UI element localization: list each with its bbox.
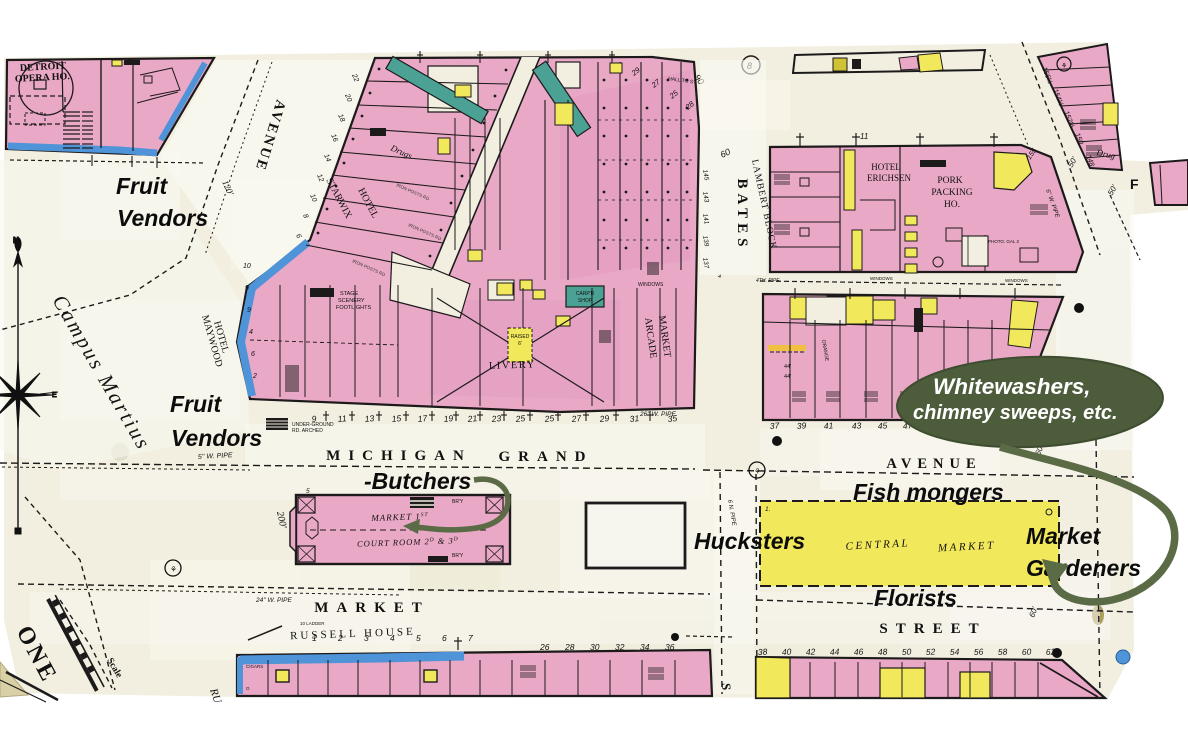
svg-text:25: 25	[543, 413, 555, 424]
svg-text:Whitewashers,: Whitewashers,	[933, 374, 1091, 399]
svg-text:2: 2	[337, 633, 343, 643]
svg-text:HO.: HO.	[944, 200, 960, 210]
svg-text:6: 6	[442, 633, 447, 643]
svg-text:-Butchers: -Butchers	[364, 468, 471, 494]
svg-text:BR'Y: BR'Y	[452, 553, 464, 559]
svg-text:1: 1	[312, 633, 317, 643]
svg-text:5: 5	[416, 633, 421, 643]
svg-text:44': 44'	[784, 364, 791, 370]
svg-text:F: F	[1130, 176, 1139, 192]
svg-text:6: 6	[251, 351, 255, 358]
svg-text:31: 31	[629, 413, 640, 424]
svg-text:MICHIGAN: MICHIGAN	[326, 448, 472, 464]
svg-text:36: 36	[665, 642, 675, 652]
svg-text:25: 25	[514, 413, 526, 424]
svg-text:BATES: BATES	[734, 178, 750, 251]
svg-text:58: 58	[998, 647, 1008, 657]
svg-text:9: 9	[247, 307, 251, 314]
svg-text:Fruit: Fruit	[116, 173, 168, 199]
svg-text:4TH. PIPE: 4TH. PIPE	[756, 278, 780, 284]
svg-text:BR'Y: BR'Y	[452, 499, 464, 505]
svg-text:Market: Market	[1026, 523, 1101, 549]
svg-text:chimney sweeps, etc.: chimney sweeps, etc.	[913, 402, 1118, 424]
svg-text:27: 27	[570, 413, 582, 424]
svg-text:WINDOWS: WINDOWS	[638, 282, 664, 288]
svg-text:PHOTO. GAL 2: PHOTO. GAL 2	[988, 239, 1020, 244]
svg-text:HOTEL: HOTEL	[871, 162, 901, 172]
svg-text:AVENUE: AVENUE	[886, 456, 981, 472]
svg-text:MARKET: MARKET	[314, 600, 430, 616]
svg-text:STREET: STREET	[879, 621, 986, 637]
svg-text:30: 30	[590, 642, 600, 652]
svg-text:WINDOWS: WINDOWS	[1005, 278, 1028, 283]
svg-text:SHOP: SHOP	[578, 298, 593, 304]
svg-text:6': 6'	[518, 341, 522, 347]
svg-text:O: O	[246, 686, 250, 691]
svg-text:Hucksters: Hucksters	[694, 528, 805, 554]
svg-text:1.: 1.	[765, 506, 771, 513]
svg-text:ERICHSEN: ERICHSEN	[867, 173, 912, 183]
svg-text:4: 4	[390, 633, 395, 643]
svg-text:Fish mongers: Fish mongers	[853, 479, 1004, 505]
svg-text:9: 9	[245, 285, 249, 292]
svg-text:39: 39	[796, 420, 806, 431]
svg-text:RD. ARCHED: RD. ARCHED	[292, 428, 323, 434]
svg-text:32: 32	[615, 642, 625, 652]
svg-text:40: 40	[782, 647, 792, 657]
svg-text:STAGE: STAGE	[340, 291, 359, 297]
svg-text:⚘: ⚘	[170, 565, 177, 574]
svg-text:43: 43	[851, 420, 861, 431]
svg-text:N: N	[13, 236, 19, 245]
svg-text:54: 54	[950, 647, 960, 657]
svg-text:21: 21	[466, 413, 478, 424]
svg-text:56: 56	[974, 647, 984, 657]
svg-text:15: 15	[391, 413, 402, 424]
svg-text:10 LADDER: 10 LADDER	[300, 621, 325, 626]
svg-text:GRAND: GRAND	[499, 449, 594, 465]
svg-text:5: 5	[306, 488, 310, 495]
svg-text:RAISED: RAISED	[511, 334, 530, 340]
svg-text:34: 34	[640, 642, 650, 652]
svg-text:37: 37	[769, 420, 779, 431]
svg-text:44: 44	[830, 647, 840, 657]
svg-text:52: 52	[926, 647, 936, 657]
svg-text:50: 50	[902, 647, 912, 657]
svg-text:28: 28	[564, 642, 575, 652]
svg-text:41: 41	[823, 420, 833, 431]
svg-text:38: 38	[758, 647, 768, 657]
svg-text:24'' W. PIPE: 24'' W. PIPE	[255, 597, 293, 604]
svg-text:42: 42	[806, 647, 816, 657]
svg-text:45: 45	[877, 420, 887, 431]
svg-text:3: 3	[364, 633, 369, 643]
svg-text:Vendors: Vendors	[117, 205, 208, 231]
svg-text:48: 48	[878, 647, 888, 657]
svg-text:PACKING: PACKING	[931, 188, 972, 198]
svg-text:E: E	[52, 392, 57, 399]
svg-text:29: 29	[598, 413, 610, 424]
svg-text:SCENERY: SCENERY	[338, 298, 365, 304]
svg-text:MARKET 1ST: MARKET 1ST	[370, 511, 429, 523]
svg-text:7: 7	[468, 633, 473, 643]
svg-text:11: 11	[860, 132, 868, 141]
svg-text:WINDOWS: WINDOWS	[870, 276, 893, 281]
svg-text:Florists: Florists	[874, 585, 957, 611]
svg-text:FOOTLIGHTS: FOOTLIGHTS	[336, 305, 371, 311]
svg-text:46: 46	[854, 647, 864, 657]
svg-text:17: 17	[417, 413, 428, 424]
svg-text:23: 23	[490, 413, 502, 424]
svg-text:PORK: PORK	[937, 176, 962, 186]
svg-text:Vendors: Vendors	[171, 425, 262, 451]
svg-text:S: S	[719, 683, 734, 690]
svg-text:Gardeners: Gardeners	[1026, 555, 1141, 581]
svg-text:11: 11	[337, 413, 347, 424]
svg-text:13: 13	[364, 413, 375, 424]
svg-text:26'' W. PIPE: 26'' W. PIPE	[639, 411, 677, 418]
svg-text:26: 26	[539, 642, 550, 652]
svg-text:Fruit: Fruit	[170, 391, 222, 417]
svg-text:10: 10	[243, 263, 251, 270]
svg-text:LIVERY: LIVERY	[489, 359, 536, 372]
svg-text:⚘: ⚘	[754, 467, 761, 476]
svg-text:4: 4	[249, 329, 253, 336]
svg-text:CIGARS: CIGARS	[246, 664, 263, 669]
svg-text:⚘: ⚘	[1061, 62, 1067, 70]
svg-text:44': 44'	[784, 374, 791, 380]
svg-text:2: 2	[252, 373, 257, 380]
svg-text:19: 19	[443, 413, 454, 424]
svg-text:60: 60	[1022, 647, 1032, 657]
